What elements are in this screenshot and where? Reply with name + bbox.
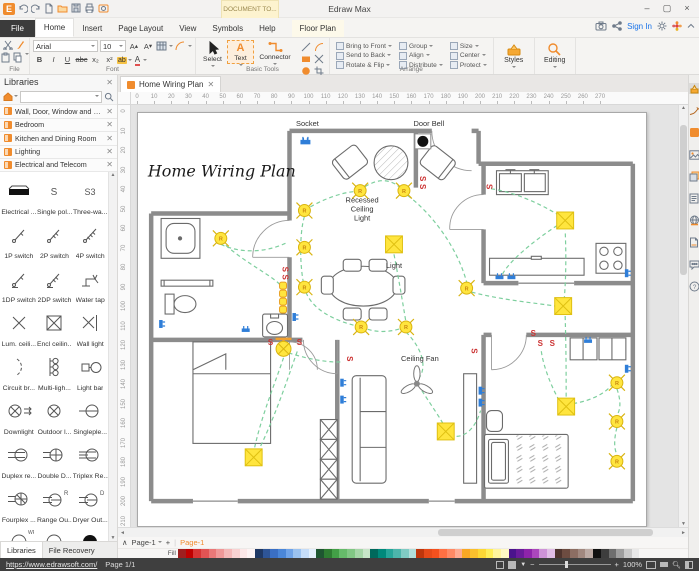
color-swatch[interactable] — [224, 549, 232, 558]
vertical-ruler: 0102030405060708090100110120130140150160… — [118, 105, 131, 527]
library-symbol[interactable]: Lum. ceili... — [1, 306, 37, 350]
svg-text:?: ? — [692, 284, 696, 291]
color-swatch[interactable] — [609, 549, 617, 558]
library-icon — [4, 107, 12, 115]
color-swatch[interactable] — [378, 549, 386, 558]
panel-tab-file-recovery[interactable]: File Recovery — [43, 542, 101, 558]
close-document-icon[interactable]: ✕ — [207, 80, 214, 89]
fill-style-icon[interactable] — [156, 41, 167, 51]
furniture — [161, 144, 626, 500]
tab-home[interactable]: Home — [35, 18, 74, 37]
library-symbol[interactable]: 2P switch — [37, 218, 73, 262]
connector-tool-button[interactable]: Connector — [255, 40, 295, 64]
library-symbol[interactable]: RRange Ou... — [37, 482, 73, 526]
cut-icon[interactable] — [3, 40, 13, 50]
font-name-select[interactable]: Arial — [33, 40, 98, 52]
svg-text:R: R — [359, 325, 363, 331]
library-item[interactable]: Bedroom✕ — [0, 118, 117, 132]
tab-insert[interactable]: Insert — [74, 20, 110, 37]
color-swatch[interactable] — [263, 549, 271, 558]
document-tab[interactable]: Home Wiring Plan ✕ — [120, 76, 221, 92]
switch-mark: S — [538, 339, 543, 348]
recessed-ceiling-light: R — [396, 183, 412, 199]
library-symbol[interactable]: Water tap — [72, 262, 108, 306]
square-light — [386, 236, 403, 253]
edrawsoft-link[interactable]: https://www.edrawsoft.com/ — [6, 560, 97, 569]
libraries-panel-title: Libraries — [4, 77, 39, 87]
light-label: Light — [386, 261, 403, 270]
door-bell-label: Door Bell — [413, 119, 444, 128]
increase-font-button[interactable]: A▴ — [128, 42, 140, 51]
new-page-icon[interactable] — [689, 237, 699, 248]
color-swatch[interactable] — [363, 549, 371, 558]
socket-label: Socket — [296, 119, 320, 128]
text-a-icon: A — [237, 42, 245, 54]
zoom-in-button[interactable]: + — [615, 560, 619, 569]
page-indicator: Page 1/1 — [105, 560, 135, 569]
color-swatch[interactable] — [286, 549, 294, 558]
switch-mark: S — [281, 275, 290, 280]
landscape-view-icon[interactable] — [508, 561, 516, 569]
svg-text:Ceiling: Ceiling — [351, 205, 374, 214]
pan-window-icon[interactable] — [685, 561, 693, 569]
format-superscript-button[interactable]: x² — [103, 54, 116, 66]
library-symbol[interactable]: Multi-ligh... — [37, 350, 73, 394]
recessed-ceiling-light: R — [609, 414, 625, 430]
tab-symbols[interactable]: Symbols — [204, 20, 251, 37]
insert-image-icon[interactable] — [689, 149, 699, 160]
square-light — [437, 423, 454, 440]
socket-symbol — [340, 379, 346, 387]
symbols-scrollbar[interactable]: ▲▼ — [108, 172, 117, 542]
close-library-icon[interactable]: ✕ — [106, 147, 113, 156]
color-swatch[interactable] — [462, 549, 470, 558]
color-swatch[interactable] — [347, 549, 355, 558]
svg-text:R: R — [615, 460, 619, 466]
undo-icon[interactable] — [18, 3, 28, 14]
color-swatch[interactable] — [539, 549, 547, 558]
library-symbol[interactable]: WP — [1, 526, 37, 542]
recessed-ceiling-light: R — [609, 375, 625, 391]
library-symbol[interactable]: Fourplex ... — [1, 482, 37, 526]
bar-light — [280, 290, 287, 297]
zoom-slider[interactable] — [539, 564, 611, 565]
close-panel-icon[interactable]: ✕ — [106, 78, 113, 87]
color-swatch[interactable] — [255, 549, 263, 558]
library-symbol[interactable]: Double D... — [37, 438, 73, 482]
color-swatch[interactable] — [324, 549, 332, 558]
color-swatch[interactable] — [447, 549, 455, 558]
close-button[interactable]: × — [677, 0, 697, 17]
color-swatch[interactable] — [409, 549, 417, 558]
color-swatch[interactable] — [309, 549, 317, 558]
color-swatch[interactable] — [547, 549, 555, 558]
redo-icon[interactable] — [31, 3, 41, 14]
svg-text:R: R — [465, 286, 469, 292]
page-bar: ∧ Page-1 + | Page-1 — [118, 537, 688, 548]
svg-text:R: R — [402, 189, 406, 195]
color-swatch[interactable] — [186, 549, 194, 558]
format-italic-button[interactable]: I — [47, 54, 60, 66]
svg-text:R: R — [64, 491, 69, 497]
add-page-button[interactable]: + — [166, 538, 170, 547]
arc-style-icon[interactable] — [175, 41, 186, 51]
color-swatch[interactable] — [432, 549, 440, 558]
home-icon — [3, 92, 13, 101]
title-bar: E DOCUMENT TO... Edraw Max – ▢ × — [0, 0, 699, 18]
fill-label: Fill — [162, 550, 176, 557]
bring-to-front-button[interactable]: Bring to Front — [336, 42, 392, 50]
svg-text:D: D — [100, 491, 105, 497]
color-swatch[interactable] — [532, 549, 540, 558]
zoom-out-button[interactable]: − — [530, 560, 534, 569]
library-symbol[interactable]: Triplex Re... — [72, 438, 108, 482]
cursor-icon — [206, 41, 220, 55]
library-symbol[interactable]: Electrical ... — [1, 174, 37, 218]
switch-mark: S — [485, 184, 494, 189]
font-size-select[interactable]: 10 — [100, 40, 126, 52]
socket-symbol — [625, 269, 631, 277]
switch-mark: S — [345, 356, 354, 361]
library-home-button[interactable] — [3, 92, 18, 101]
library-symbol[interactable]: 1DP switch — [1, 262, 37, 306]
horizontal-scrollbar[interactable]: ◄► — [118, 527, 688, 537]
close-library-icon[interactable]: ✕ — [106, 134, 113, 143]
color-swatch[interactable] — [524, 549, 532, 558]
color-swatch[interactable] — [370, 549, 378, 558]
library-symbol[interactable]: 4P switch — [72, 218, 108, 262]
fill-palette: Fill — [118, 548, 688, 558]
color-swatch[interactable] — [624, 549, 632, 558]
color-swatch[interactable] — [216, 549, 224, 558]
library-symbol[interactable]: 1P switch — [1, 218, 37, 262]
library-symbol[interactable]: Light bar — [72, 350, 108, 394]
color-swatch[interactable] — [562, 549, 570, 558]
minimize-button[interactable]: – — [637, 0, 657, 17]
library-symbol[interactable]: Circuit br... — [1, 350, 37, 394]
page-tab[interactable]: Page-1 — [180, 538, 204, 547]
document-tools-tab[interactable]: DOCUMENT TO... — [221, 0, 279, 18]
color-swatch[interactable] — [193, 549, 201, 558]
tab-page-layout[interactable]: Page Layout — [110, 20, 171, 37]
socket-symbol — [242, 326, 250, 332]
line-tool-icon[interactable] — [301, 42, 313, 53]
svg-text:Light: Light — [354, 213, 371, 222]
color-swatch[interactable] — [501, 549, 509, 558]
sign-in-link[interactable]: Sign In — [627, 22, 652, 31]
paste-special-icon[interactable] — [13, 52, 22, 63]
color-swatch[interactable] — [240, 549, 248, 558]
color-swatch[interactable] — [393, 549, 401, 558]
socket-symbol — [292, 313, 298, 321]
vertical-scrollbar[interactable]: ▲▼ — [678, 105, 688, 527]
library-icon — [4, 134, 12, 142]
tab-file[interactable]: File — [0, 20, 35, 37]
color-swatch[interactable] — [470, 549, 478, 558]
filter-icon[interactable]: ▼ — [520, 562, 526, 568]
svg-text:S3: S3 — [85, 187, 96, 197]
signature-pen-icon[interactable] — [689, 105, 699, 116]
library-item[interactable]: Electrical and Telecom✕ — [0, 158, 117, 172]
search-icon[interactable] — [104, 92, 114, 102]
fill-color-icon[interactable] — [689, 127, 699, 138]
color-swatch[interactable] — [316, 549, 324, 558]
edraw-logo-icon: E — [3, 3, 15, 15]
bar-light — [280, 306, 287, 313]
library-item[interactable]: Wall, Door, Window and Structure✕ — [0, 104, 117, 118]
library-symbol[interactable]: Outdoor l... — [37, 394, 73, 438]
drawing-page[interactable]: RRRRRRRRRRRRSSSSSSSSSSSS Home Wiring Pla… — [137, 112, 647, 527]
recessed-ceiling-light: R — [609, 453, 625, 469]
switch-mark: S — [550, 339, 555, 348]
library-symbol[interactable]: Singleple... — [72, 394, 108, 438]
color-swatch[interactable] — [516, 549, 524, 558]
square-light — [555, 298, 572, 315]
save-icon[interactable] — [71, 3, 81, 14]
size-button[interactable]: Size — [450, 42, 487, 50]
color-swatch[interactable] — [616, 549, 624, 558]
socket-symbol — [625, 365, 631, 373]
library-symbol[interactable]: S3Three-wa... — [72, 174, 108, 218]
color-swatch[interactable] — [424, 549, 432, 558]
freeform-tool-icon[interactable] — [314, 54, 326, 65]
svg-text:R: R — [358, 189, 362, 195]
library-symbol[interactable]: DDryer Out... — [72, 482, 108, 526]
menu-bar: FileHomeInsertPage LayoutViewSymbolsHelp… — [0, 18, 699, 38]
color-swatch[interactable] — [555, 549, 563, 558]
color-swatch[interactable] — [585, 549, 593, 558]
plan-title: Home Wiring Plan — [147, 162, 296, 181]
tab-floor-plan[interactable]: Floor Plan — [292, 20, 344, 37]
library-item[interactable]: Kitchen and Dining Room✕ — [0, 131, 117, 145]
recessed-ceiling-light: R — [353, 319, 369, 335]
recessed-ceiling-light: R — [296, 279, 312, 295]
color-swatch[interactable] — [416, 549, 424, 558]
color-swatch[interactable] — [386, 549, 394, 558]
libraries-panel: Libraries ✕ Wall, Door, Window and Struc… — [0, 75, 118, 558]
color-swatch[interactable] — [493, 549, 501, 558]
recessed-ceiling-light: R — [296, 203, 312, 219]
layers-icon[interactable] — [689, 171, 699, 182]
ribbon-group-basic-tools: Select A Text Connector Basic Tools — [196, 38, 330, 74]
svg-text:R: R — [302, 209, 306, 215]
portrait-view-icon[interactable] — [496, 561, 504, 569]
library-symbol[interactable]: Downlight — [1, 394, 37, 438]
switch-mark: S — [418, 184, 427, 189]
hyperlink-globe-icon[interactable] — [689, 215, 699, 226]
ruler-corner — [118, 92, 131, 104]
bar-light — [280, 298, 287, 305]
recessed-ceiling-light: R — [398, 319, 414, 335]
snapshot-icon[interactable] — [595, 21, 607, 31]
color-swatch[interactable] — [270, 549, 278, 558]
color-swatch[interactable] — [578, 549, 586, 558]
recessed-ceiling-light: R — [459, 280, 475, 296]
color-swatch[interactable] — [509, 549, 517, 558]
color-swatch[interactable] — [455, 549, 463, 558]
format-painter-icon[interactable] — [689, 83, 699, 94]
maximize-button[interactable]: ▢ — [657, 0, 677, 17]
zoom-tool-icon[interactable]: 🔍︎ — [672, 561, 681, 569]
format-subscript-button[interactable]: x₂ — [89, 54, 102, 66]
quick-access-toolbar: E — [0, 3, 109, 15]
library-symbol[interactable]: SSingle pol... — [37, 174, 73, 218]
page-selector[interactable]: Page-1 — [132, 538, 162, 547]
color-swatch[interactable] — [232, 549, 240, 558]
ceiling-fan-symbol — [400, 366, 434, 396]
socket-fixture — [300, 137, 310, 144]
library-item[interactable]: Lighting✕ — [0, 145, 117, 159]
color-swatch[interactable] — [293, 549, 301, 558]
color-swatch[interactable] — [332, 549, 340, 558]
send-to-back-button[interactable]: Send to Back — [336, 52, 392, 60]
ceiling-fan-label: Ceiling Fan — [401, 354, 439, 363]
highlight-icon[interactable]: ab — [117, 57, 127, 64]
switch-mark: S — [470, 348, 479, 353]
window-controls: – ▢ × — [637, 0, 697, 17]
rect-tool-icon[interactable] — [301, 54, 313, 65]
color-swatch[interactable] — [439, 549, 447, 558]
fit-window-icon[interactable] — [646, 561, 656, 569]
close-library-icon[interactable]: ✕ — [106, 160, 113, 169]
socket-symbol — [159, 320, 165, 328]
color-swatch[interactable] — [632, 549, 640, 558]
svg-text:R: R — [615, 381, 619, 387]
tab-help[interactable]: Help — [251, 20, 283, 37]
svg-text:R: R — [615, 420, 619, 426]
square-light — [558, 398, 575, 415]
format-painter-icon[interactable] — [16, 40, 26, 50]
comment-icon[interactable] — [689, 259, 699, 270]
group-button[interactable]: Group — [399, 42, 443, 50]
svg-text:R: R — [219, 237, 223, 243]
format-bold-button[interactable]: B — [33, 54, 46, 66]
square-light — [245, 449, 262, 466]
switch-mark: S — [418, 176, 427, 181]
note-document-icon[interactable] — [689, 193, 699, 204]
share-icon[interactable] — [612, 21, 622, 31]
door-bell-fixture — [415, 134, 431, 149]
editing-button[interactable]: Editing — [538, 40, 572, 64]
svg-text:Recessed: Recessed — [346, 196, 379, 205]
collapse-ribbon-icon[interactable] — [687, 22, 695, 30]
gear-icon[interactable] — [657, 21, 667, 31]
library-icon — [4, 121, 12, 129]
ribbon: File Arial 10 A▴ A▾ BIUabcx₂x²ab A Font … — [0, 38, 699, 75]
close-library-icon[interactable]: ✕ — [106, 120, 113, 129]
snapshot-icon[interactable] — [98, 3, 109, 14]
switch-mark: S — [531, 329, 536, 338]
switch-mark: S — [268, 338, 273, 347]
ribbon-group-arrange: Bring to FrontSend to BackRotate & FlipG… — [330, 38, 494, 74]
switch-mark: S — [281, 267, 290, 272]
styles-icon — [506, 42, 522, 56]
library-symbol[interactable]: Duplex re... — [1, 438, 37, 482]
panel-tab-libraries[interactable]: Libraries — [0, 542, 43, 558]
close-library-icon[interactable]: ✕ — [106, 107, 113, 116]
open-folder-icon[interactable] — [57, 3, 68, 14]
arc-tool-icon[interactable] — [314, 42, 326, 53]
svg-text:S: S — [51, 187, 58, 198]
bar-light — [280, 282, 287, 289]
new-document-icon[interactable] — [44, 3, 54, 14]
color-swatch[interactable] — [486, 549, 494, 558]
color-swatch[interactable] — [247, 549, 255, 558]
center-button[interactable]: Center — [450, 52, 487, 60]
fit-width-icon[interactable] — [660, 562, 668, 567]
decrease-font-button[interactable]: A▾ — [142, 42, 154, 51]
library-symbol[interactable] — [37, 526, 73, 542]
horizontal-ruler: 0102030405060708090100110120130140150160… — [131, 92, 688, 104]
help-icon[interactable]: ? — [689, 281, 699, 292]
align-button[interactable]: Align — [399, 52, 443, 60]
recessed-ceiling-light: R — [213, 230, 229, 246]
symbol-list: Electrical ...SSingle pol...S3Three-wa..… — [0, 172, 117, 542]
editing-magnifier-icon — [547, 42, 562, 56]
color-swatch[interactable] — [478, 549, 486, 558]
community-icon[interactable] — [672, 21, 682, 31]
text-tool-button[interactable]: A Text — [227, 40, 254, 64]
document-tab-bar: Home Wiring Plan ✕ — [118, 75, 688, 92]
styles-button[interactable]: Styles — [497, 40, 531, 64]
pages-collapse-icon[interactable]: ∧ — [122, 538, 128, 547]
color-swatch[interactable] — [201, 549, 209, 558]
format-strikethrough-button[interactable]: abc — [75, 54, 88, 66]
svg-text:R: R — [404, 325, 408, 331]
ribbon-group-styles: Styles — [494, 38, 535, 74]
right-tool-strip: ? — [688, 75, 699, 558]
font-color-icon[interactable]: A — [135, 55, 140, 66]
library-symbol[interactable]: 2DP switch — [37, 262, 73, 306]
status-bar: https://www.edrawsoft.com/ Page 1/1 ▼ − … — [0, 558, 699, 571]
document-icon — [127, 81, 135, 89]
color-swatch[interactable] — [355, 549, 363, 558]
library-symbol[interactable] — [72, 526, 108, 542]
color-swatch[interactable] — [178, 549, 186, 558]
select-tool-button[interactable]: Select — [199, 40, 226, 64]
canvas-viewport[interactable]: 0102030405060708090100110120130140150160… — [118, 105, 688, 527]
socket-symbol — [340, 396, 346, 404]
color-swatch[interactable] — [301, 549, 309, 558]
ribbon-group-file: File — [0, 38, 30, 74]
svg-text:R: R — [302, 246, 306, 252]
library-icon — [4, 148, 12, 156]
color-swatch[interactable] — [278, 549, 286, 558]
library-symbol[interactable]: Wall light — [72, 306, 108, 350]
svg-text:WP: WP — [28, 530, 34, 536]
zoom-level[interactable]: 100% — [623, 560, 642, 569]
library-icon — [4, 161, 12, 169]
color-swatch[interactable] — [570, 549, 578, 558]
square-light — [557, 212, 574, 229]
svg-text:R: R — [302, 285, 306, 291]
tab-view[interactable]: View — [171, 20, 204, 37]
ribbon-group-editing: Editing — [535, 38, 576, 74]
format-underline-button[interactable]: U — [61, 54, 74, 66]
paste-icon[interactable] — [1, 52, 10, 63]
print-icon[interactable] — [84, 3, 95, 14]
color-swatch[interactable] — [401, 549, 409, 558]
switch-mark: S — [297, 338, 302, 347]
library-search-input[interactable] — [20, 91, 102, 103]
color-swatch[interactable] — [593, 549, 601, 558]
color-swatch[interactable] — [209, 549, 217, 558]
recessed-ceiling-light: R — [296, 239, 312, 255]
ribbon-group-font: Arial 10 A▴ A▾ BIUabcx₂x²ab A Font — [30, 38, 196, 74]
library-symbol[interactable]: Encl ceilin... — [37, 306, 73, 350]
color-swatch[interactable] — [339, 549, 347, 558]
color-swatch[interactable] — [601, 549, 609, 558]
